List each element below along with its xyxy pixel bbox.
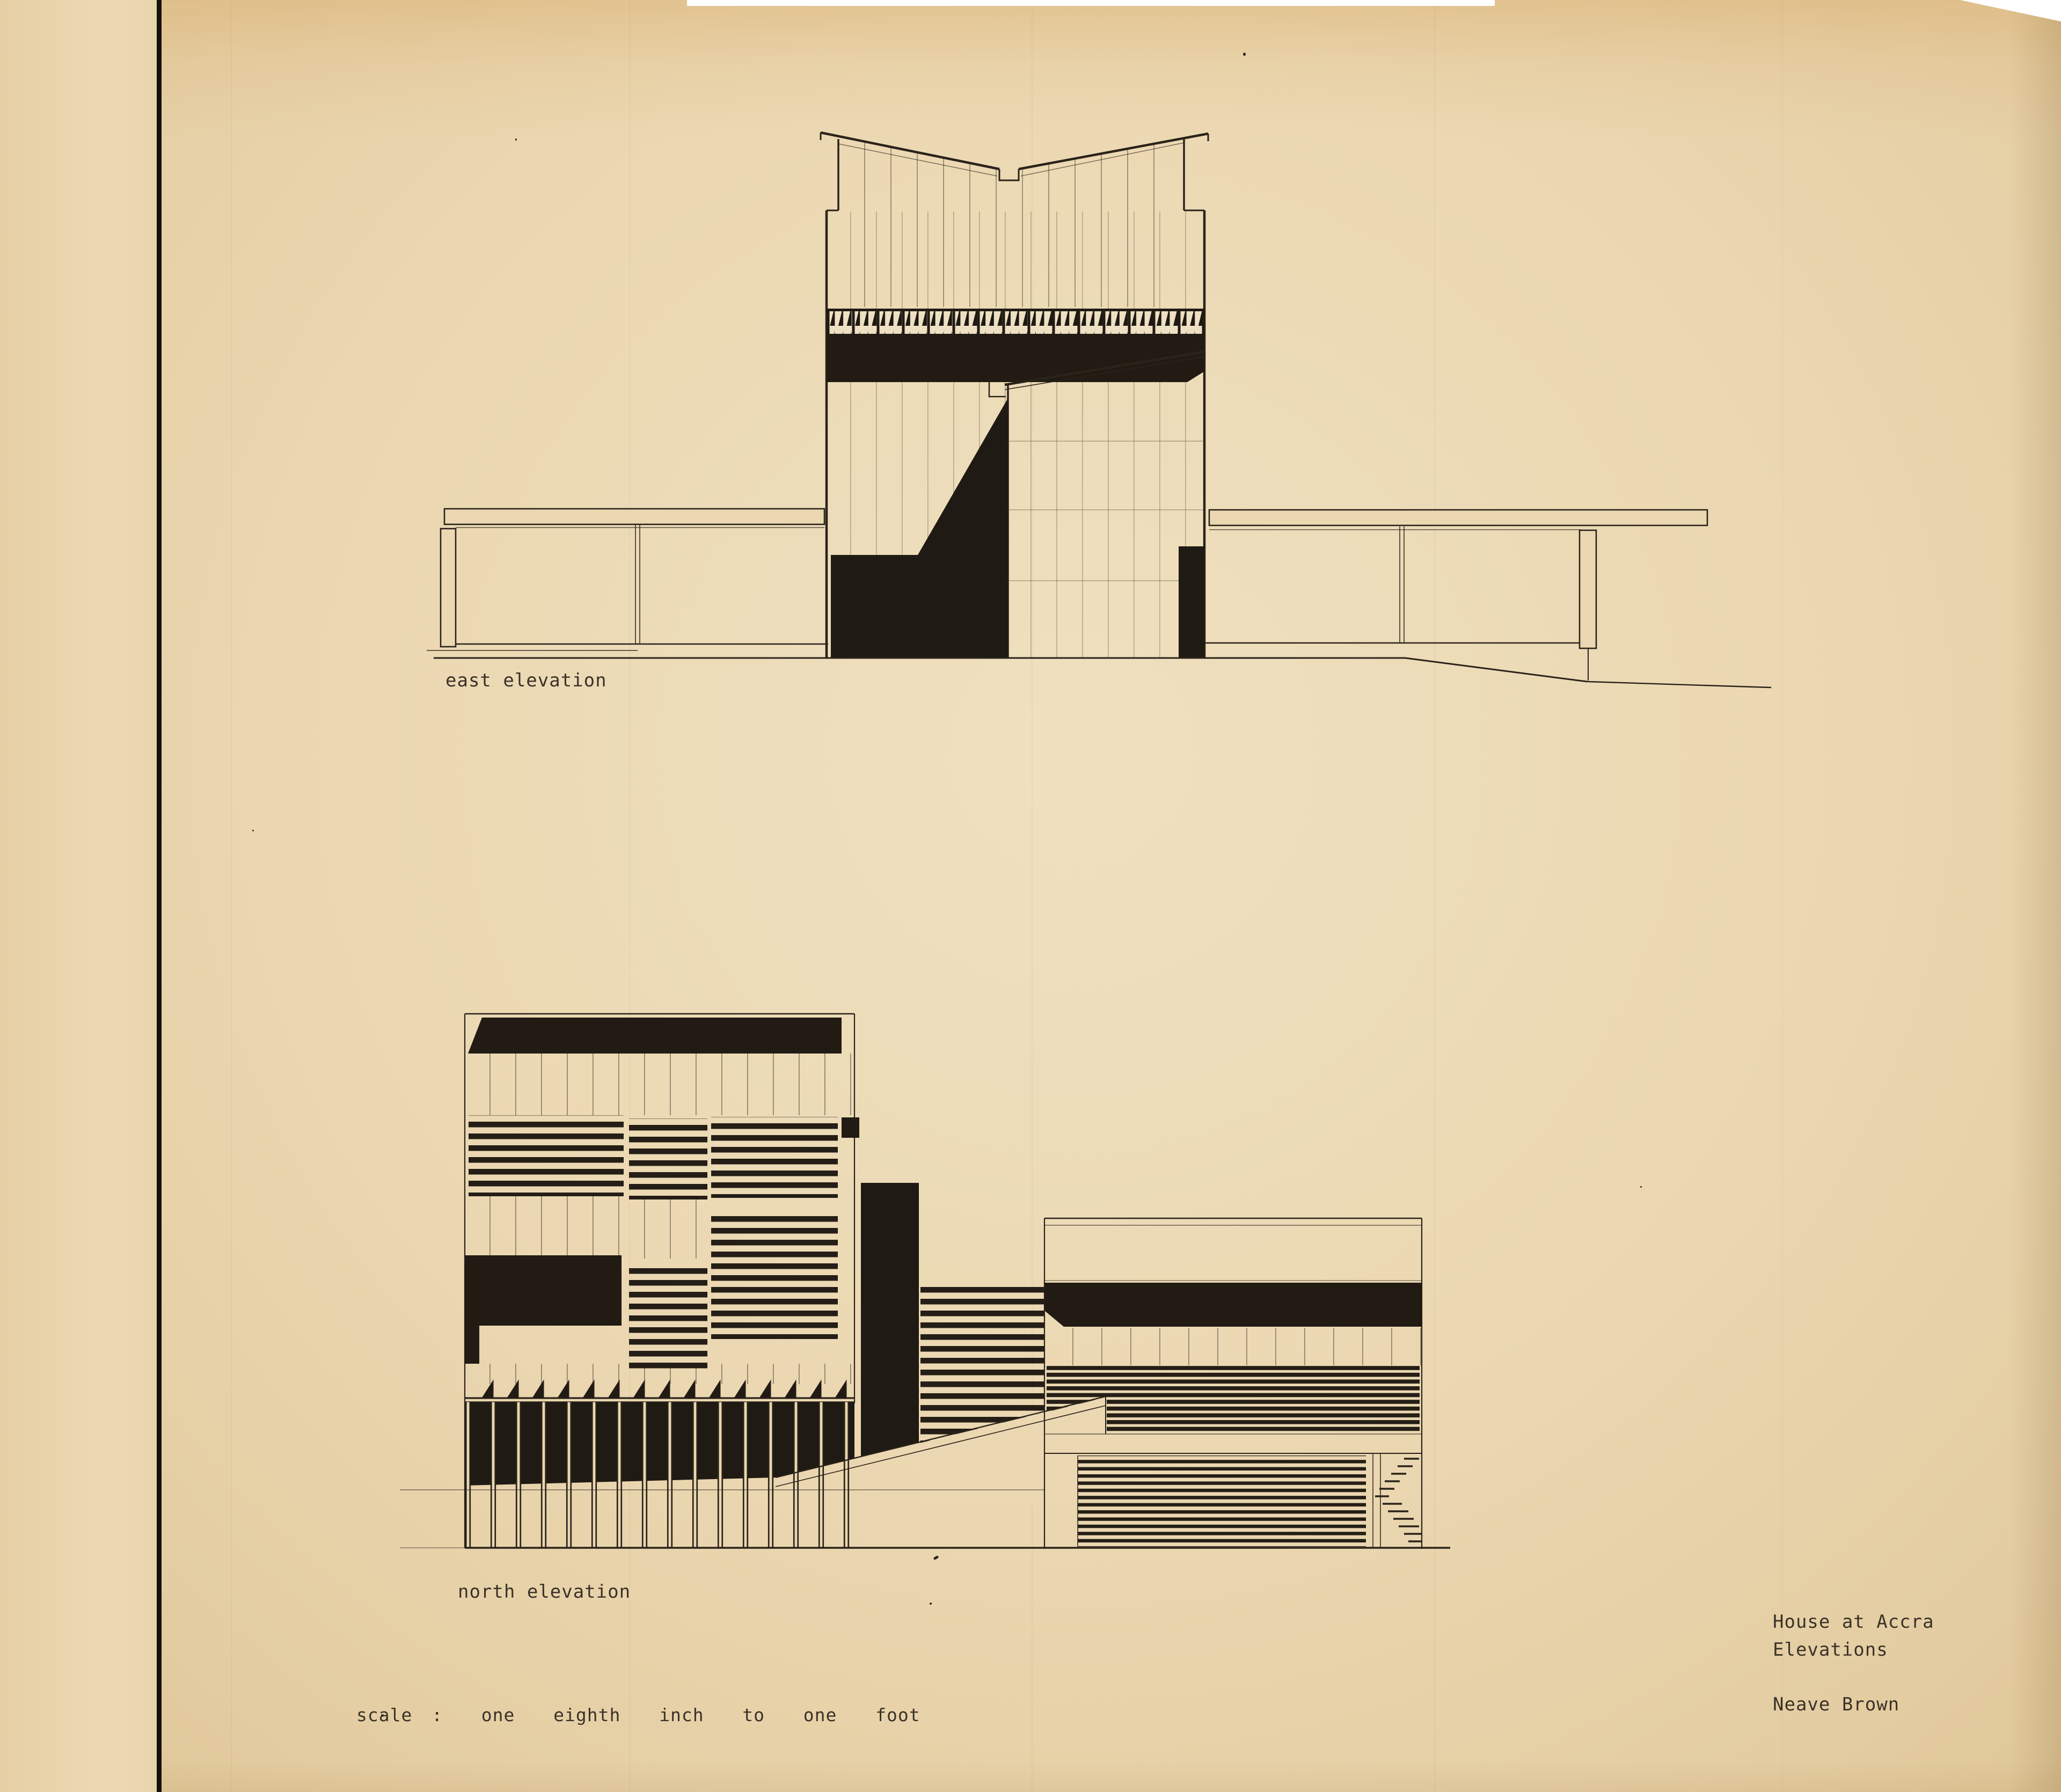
paper-speck [1640,1186,1642,1188]
east-right-base-slab [1179,546,1204,658]
east-left-wing [427,509,828,650]
north-elevation-drawing [400,1014,1450,1549]
paper-speck [930,1603,932,1605]
drawing-sheet: east elevation north elevation scale : o… [0,0,2061,1792]
east-elevation-drawing [427,133,1771,687]
paper-speck [252,830,254,831]
title-block-architect: Neave Brown [1773,1694,1899,1715]
north-left-roof-band [468,1018,842,1054]
paper-speck [1243,53,1246,56]
binding-rule-line [157,0,162,1792]
east-right-wing [1205,510,1707,681]
north-middle-strip [861,1183,1079,1503]
east-black-spandrel-band [827,338,1204,382]
north-floor-slab [465,1398,854,1402]
paper-speck [381,1714,384,1716]
caption-north-elevation: north elevation [458,1581,631,1603]
title-block-sheet: Elevations [1773,1639,1888,1661]
north-louver-panel-mid [629,1263,707,1369]
caption-east-elevation: east elevation [445,670,607,691]
east-louver-band [827,309,1204,339]
scale-note: scale : one eighth inch to one foot [356,1705,920,1725]
north-stair-marks [1375,1459,1421,1541]
north-right-block [1044,1218,1422,1549]
paper-speck [515,138,517,141]
title-block-project: House at Accra [1773,1611,1934,1633]
east-ground-line [434,658,1771,687]
north-black-block [465,1255,622,1364]
elevation-drawings-svg [0,0,2061,1792]
north-louver-panel-d [711,1212,838,1339]
north-louver-row-1 [469,1115,859,1199]
east-butterfly-roof [821,133,1208,180]
